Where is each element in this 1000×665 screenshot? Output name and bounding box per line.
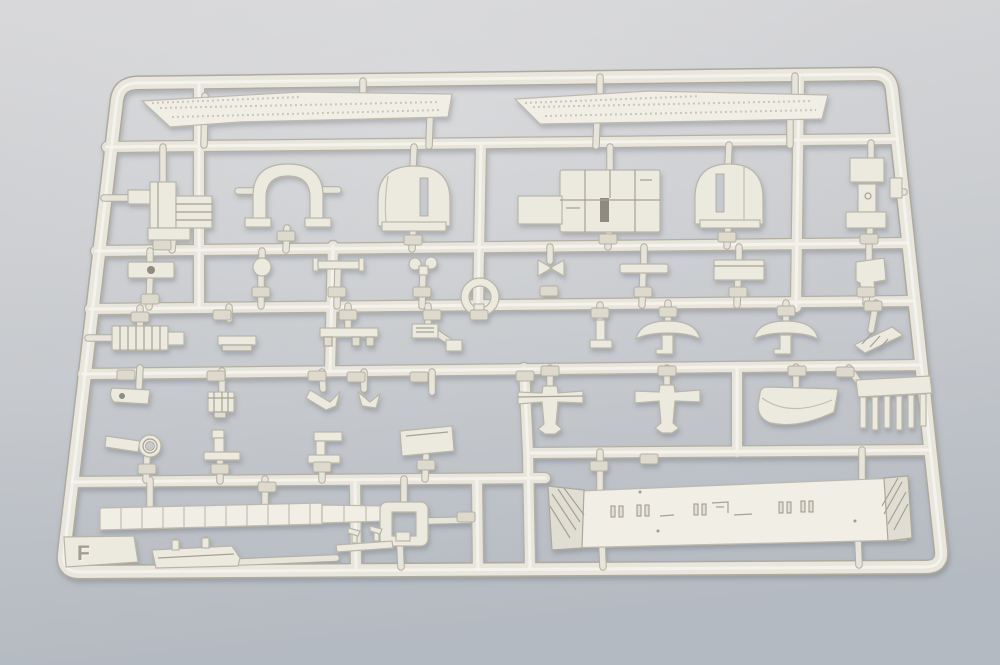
deck-bollard-4a <box>779 502 783 513</box>
part-number-tag <box>729 287 747 297</box>
deck-bollard-4b <box>787 502 791 513</box>
part-number-tag <box>599 234 617 244</box>
crane-block-part <box>412 324 438 338</box>
yardarm-end-left <box>313 258 318 271</box>
comb-tooth-2 <box>872 397 878 430</box>
part-number-tag <box>313 462 331 472</box>
comb-tooth-1 <box>860 397 866 428</box>
bulkhead-door-flange <box>382 222 446 231</box>
scene: FF <box>0 0 1000 665</box>
deck-bollard-2a <box>637 505 641 516</box>
bulkhead-door-slot <box>420 178 428 216</box>
arch-frame-foot-right <box>305 218 331 227</box>
yardarm-end-right <box>359 258 364 271</box>
part-number-tag <box>328 287 346 297</box>
edge-stub-part <box>890 178 902 198</box>
part-number-tag <box>857 287 875 297</box>
ball-fitting <box>253 258 271 276</box>
rail-bar-foot-1 <box>324 337 332 346</box>
part-number-tag <box>788 366 806 376</box>
deck-dot-1 <box>639 491 642 494</box>
deckhouse-slot <box>600 198 609 222</box>
seat-bracket-top <box>314 432 342 441</box>
plank-part <box>218 336 256 345</box>
bulkhead-door-part-2 <box>695 164 763 224</box>
mount-bracket-b <box>858 184 876 212</box>
davit-bracket-top <box>212 430 224 438</box>
comb-tooth-4 <box>896 396 902 430</box>
part-number-tag <box>423 310 441 320</box>
part-number-tag <box>339 310 357 320</box>
bulkhead-door-2-flange <box>700 220 760 228</box>
pulley-wheel-hole <box>146 442 155 451</box>
winch-base <box>148 228 190 240</box>
part-number-tag <box>258 482 276 492</box>
part-number-tag <box>457 512 475 522</box>
part-number-tag <box>516 371 534 381</box>
comb-tooth-5 <box>908 395 914 428</box>
part-number-tag <box>131 312 149 322</box>
deck-dot-2 <box>657 530 660 533</box>
butterfly-body <box>419 266 428 275</box>
yardarm-part <box>316 261 362 269</box>
part-number-tag <box>540 286 558 296</box>
deck-bollard-3a <box>694 504 698 515</box>
deck-bollard-5a <box>801 501 805 512</box>
comb-tooth-3 <box>884 396 890 428</box>
deck-bollard-2b <box>645 505 649 516</box>
part-number-tag <box>410 372 428 382</box>
winch-tower <box>150 182 176 228</box>
bar-hole <box>147 266 155 274</box>
part-number-tag <box>207 371 225 381</box>
plate-with-hole <box>110 388 150 404</box>
small-post-part <box>596 320 605 342</box>
part-number-tag <box>634 287 652 297</box>
deck-bollard-1a <box>611 506 615 517</box>
part-number-tag <box>117 370 135 380</box>
small-post-base <box>590 340 612 348</box>
panel-part <box>400 426 454 456</box>
part-number-tag <box>413 287 431 297</box>
part-number-tag <box>277 231 295 241</box>
sled-part <box>152 546 240 568</box>
hatch-box-foot <box>214 412 226 418</box>
part-number-tag <box>404 235 422 245</box>
deck-section-right-flap <box>884 476 912 541</box>
part-number-tag <box>640 454 658 464</box>
sprue-photo: FF <box>0 0 1000 665</box>
bulkhead-door-part <box>378 166 450 226</box>
sled-stub-1 <box>172 540 179 550</box>
sprue-letter-tab <box>64 536 138 567</box>
part-number-tag <box>591 308 609 318</box>
hatch-box-part <box>208 392 234 412</box>
rail-bar-part <box>320 328 378 337</box>
capstan-end <box>168 332 184 345</box>
part-number-tag <box>864 301 882 311</box>
mount-bracket-c <box>846 212 886 228</box>
part-number-tag <box>153 240 171 250</box>
plate-hole <box>119 393 125 399</box>
deck-dot-3 <box>854 520 857 523</box>
part-number-tag <box>718 232 736 242</box>
comb-tooth-6 <box>920 394 926 426</box>
part-number-tag <box>541 366 559 376</box>
part-number-tag <box>308 371 326 381</box>
part-number-tag <box>659 307 677 317</box>
tee-bar-part <box>620 264 668 273</box>
part-number-tag <box>470 310 488 320</box>
part-number-tag <box>347 372 365 382</box>
part-number-tag <box>252 287 270 297</box>
deck-bollard-1b <box>619 506 623 517</box>
square-ring-tab <box>396 532 410 541</box>
bulkhead-door-2-slot <box>716 174 724 212</box>
rail-bar-foot-3 <box>366 337 374 346</box>
winch-stub <box>128 190 150 204</box>
deck-bollard-5b <box>809 501 813 512</box>
part-number-tag <box>213 310 231 320</box>
part-number-tag <box>138 464 156 474</box>
rail-bar-foot-2 <box>352 337 360 346</box>
deck-bollard-3b <box>702 504 706 515</box>
davit-bracket-base <box>204 452 240 460</box>
part-number-tag <box>211 464 229 474</box>
flag-panel-part <box>714 260 764 280</box>
part-number-tag <box>417 460 435 470</box>
crane-flag <box>446 340 462 351</box>
arch-frame-foot-left <box>245 218 271 227</box>
part-number-tag <box>860 234 878 244</box>
textured-strip-right <box>515 91 828 124</box>
sled-stub-2 <box>202 538 209 548</box>
part-number-tag <box>590 461 608 471</box>
part-number-tag <box>658 366 676 376</box>
plank-part-shadow <box>222 345 252 351</box>
part-number-tag <box>777 306 795 316</box>
part-number-tag <box>836 367 854 377</box>
mount-bracket-a <box>850 158 884 182</box>
deckhouse-wing <box>518 196 562 224</box>
part-number-tag <box>141 294 159 304</box>
segmented-strip-end <box>322 505 388 523</box>
sprue-letter: F <box>77 542 90 565</box>
